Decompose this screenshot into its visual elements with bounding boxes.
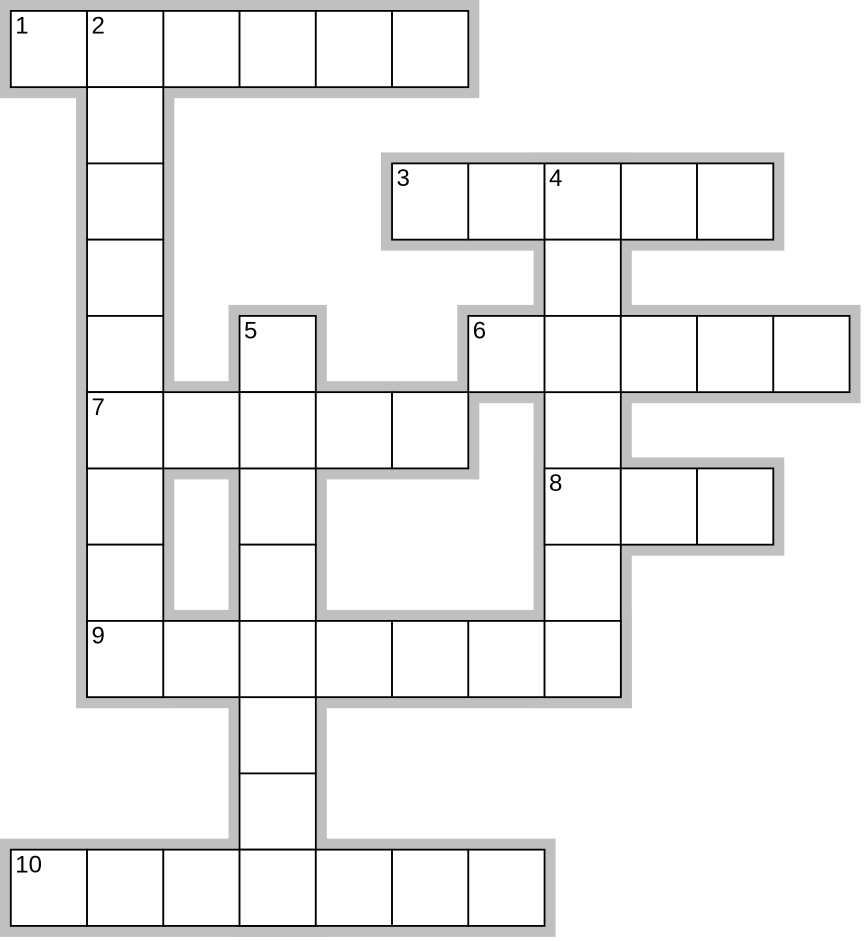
svg-text:10: 10 <box>15 851 42 878</box>
svg-text:9: 9 <box>92 623 105 650</box>
svg-text:6: 6 <box>473 318 486 345</box>
svg-text:8: 8 <box>549 470 562 497</box>
svg-text:7: 7 <box>92 394 105 421</box>
svg-text:1: 1 <box>15 13 28 40</box>
svg-text:3: 3 <box>397 165 410 192</box>
svg-text:2: 2 <box>92 13 105 40</box>
svg-text:4: 4 <box>549 165 562 192</box>
svg-text:5: 5 <box>244 318 257 345</box>
